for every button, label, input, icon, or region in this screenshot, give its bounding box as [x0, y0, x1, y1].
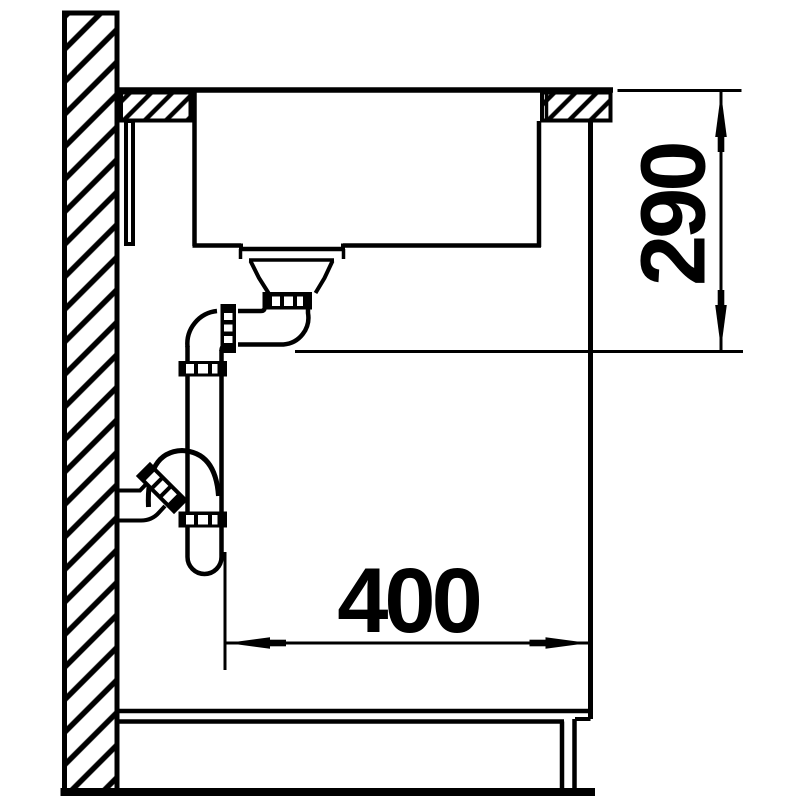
- technical-drawing-canvas: 290 400: [0, 0, 800, 800]
- slip-nut-slit: [186, 364, 194, 374]
- slip-nut-slit: [198, 515, 208, 525]
- union-slit: [224, 325, 233, 332]
- wall-section: [65, 13, 118, 791]
- dim-290-label: 290: [623, 144, 725, 286]
- slip-nut-slit: [186, 515, 194, 525]
- slip-nut-slit: [212, 515, 218, 525]
- arrow-right-tail: [530, 640, 546, 647]
- locknut-slit: [272, 297, 280, 307]
- counter-hatch-left: [121, 93, 191, 121]
- slip-nut-slit: [198, 364, 208, 374]
- locknut-slit: [297, 297, 303, 307]
- dim-400-label: 400: [337, 550, 479, 652]
- wall-hatch: [65, 13, 118, 791]
- locknut-slit: [284, 297, 293, 307]
- bowl-back-wall-section: [126, 121, 133, 244]
- arrow-down-tail: [718, 290, 725, 305]
- union-slit: [224, 336, 233, 343]
- sink-cross-section-diagram: 290 400: [0, 0, 800, 800]
- union-slit: [224, 313, 233, 320]
- arrow-left-tail: [270, 640, 286, 647]
- counter-hatch-right: [542, 93, 611, 121]
- slip-nut-slit: [212, 364, 218, 374]
